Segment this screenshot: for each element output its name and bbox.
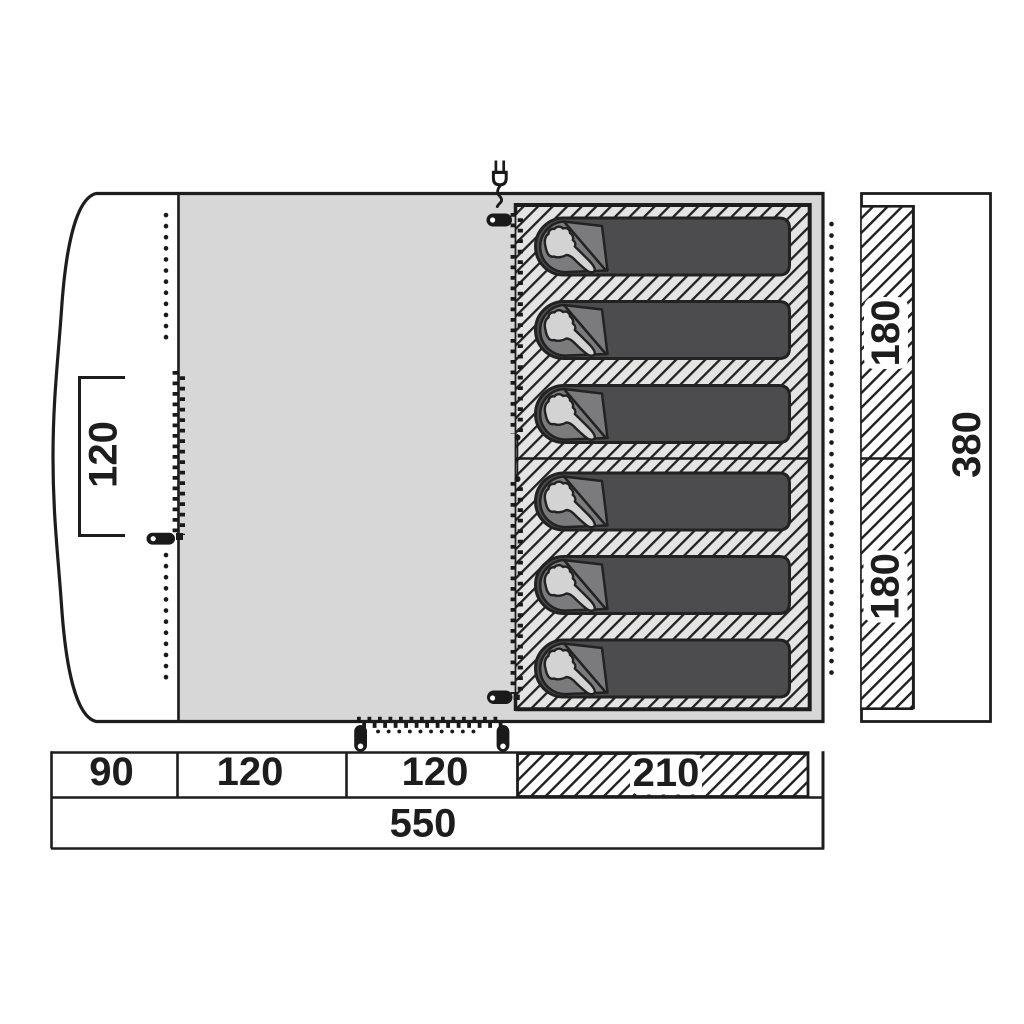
svg-text:90: 90	[89, 750, 134, 794]
svg-text:180: 180	[864, 300, 908, 367]
svg-text:120: 120	[82, 421, 126, 488]
svg-text:550: 550	[390, 802, 457, 846]
svg-text:120: 120	[402, 750, 469, 794]
svg-text:210: 210	[633, 751, 700, 795]
svg-text:180: 180	[864, 553, 908, 620]
svg-text:120: 120	[217, 750, 284, 794]
svg-text:380: 380	[945, 411, 989, 478]
